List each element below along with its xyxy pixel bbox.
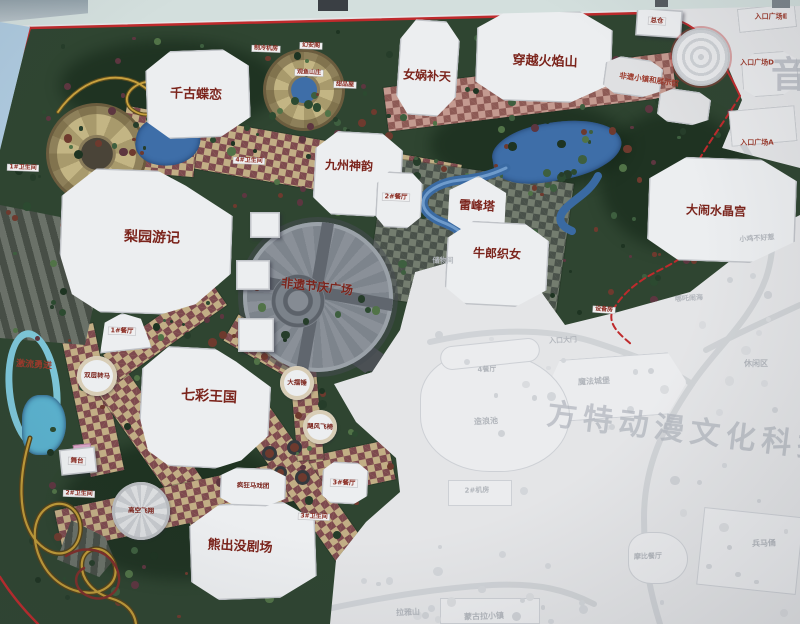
facility-weishengjian-4: 4#卫生间 <box>233 157 264 164</box>
faded-menggulaxiaozhen: 蒙古拉小镇 <box>464 612 504 622</box>
plaza-feiyijieqingguangchang: 非遗节庆广场 <box>281 277 354 297</box>
attraction-nuwabutian: 女娲补天 <box>403 68 452 83</box>
faded-nezhanaohai: 哪吒闹海 <box>675 294 703 303</box>
facility-canting-3: 3#餐厅 <box>330 479 357 487</box>
attraction-chuanyuehuoyanshan: 穿越火焰山 <box>512 54 577 70</box>
watermark-yin: 音 <box>771 57 800 95</box>
ride-gaokongfeixiang: 高空飞翔 <box>128 507 154 515</box>
faded-mobicanting: 摩比餐厅 <box>634 553 662 561</box>
attraction-liyuanyouji: 梨园游记 <box>124 230 180 247</box>
attraction-qiangudielian: 千古蝶恋 <box>170 87 222 102</box>
facility-chuwujian: 储物间 <box>433 257 454 264</box>
ride-jiliuyongjin: 激流勇进 <box>16 360 53 372</box>
facility-zhilengjifang: 制冷机房 <box>252 45 280 52</box>
attraction-jiuzhoushenyun: 九州神韵 <box>325 159 373 173</box>
park-map-photo: 千古蝶恋女娲补天穿越火焰山九州神韵雷峰塔大闹水晶宫牛郎织女梨园游记非遗节庆广场七… <box>0 0 800 624</box>
ride-jufengfeiyi: 飓风飞椅 <box>307 423 333 431</box>
faded-zaolangchi: 造浪池 <box>474 417 498 427</box>
facility-weishengjian-3: 3#卫生间 <box>298 513 329 520</box>
ride-dabaichui: 大摆锤 <box>287 379 307 386</box>
attraction-qicaiwangguo: 七彩王国 <box>181 388 238 406</box>
facility-guanyushanzhuang: 观鱼山庄 <box>295 69 323 76</box>
attraction-leifengta: 雷峰塔 <box>459 199 496 213</box>
map-labels: 千古蝶恋女娲补天穿越火焰山九州神韵雷峰塔大闹水晶宫牛郎织女梨园游记非遗节庆广场七… <box>0 0 800 624</box>
faded-canting-4: 4餐厅 <box>477 366 496 374</box>
attraction-danaoshuijinggong: 大闹水晶宫 <box>686 204 746 219</box>
facility-tianpinwu: 甜品屋 <box>334 81 356 88</box>
faded-rukoudamen: 入口大门 <box>549 337 577 346</box>
ride-fengkuangmaxituan: 疯狂马戏团 <box>237 482 270 490</box>
entrance-plaza-a: 入口广场A <box>740 139 773 146</box>
entrance-plaza-e: 入口广场E <box>755 13 788 20</box>
facility-shebeifang: 设备房 <box>593 306 615 314</box>
facility-canting-2: 2#餐厅 <box>382 193 409 201</box>
facility-wutai: 舞台 <box>68 457 85 464</box>
ride-shuangcengzhuanma: 双层转马 <box>84 372 110 380</box>
attraction-xiongchumojuchang: 熊出没剧场 <box>207 538 273 555</box>
watermark-park-name: 方特动漫文化科技 <box>545 399 800 465</box>
facility-zongcang: 总仓 <box>648 17 665 25</box>
faded-xiuxianqu: 休闲区 <box>744 360 768 368</box>
faded-xiaojibuhaore: 小鸡不好惹 <box>739 234 774 244</box>
entrance-plaza-d: 入口广场D <box>740 59 774 66</box>
area-feiyixiaozhen: 非遗小镇和展示馆 <box>619 72 680 88</box>
faded-layashan: 拉雅山 <box>396 608 420 617</box>
facility-canting-1: 1#餐厅 <box>108 327 135 335</box>
faded-mofachengbao: 魔法城堡 <box>578 377 610 387</box>
facility-weishengjian-2: 2#卫生间 <box>63 490 94 497</box>
faded-bingmayong: 兵马俑 <box>752 539 776 548</box>
attraction-niulangzhinv: 牛郎织女 <box>473 247 521 261</box>
facility-weishengjian-1: 1#卫生间 <box>7 164 38 171</box>
faded-jifang-2: 2#机房 <box>465 487 490 495</box>
facility-huananage: 幻安阁 <box>300 42 322 49</box>
